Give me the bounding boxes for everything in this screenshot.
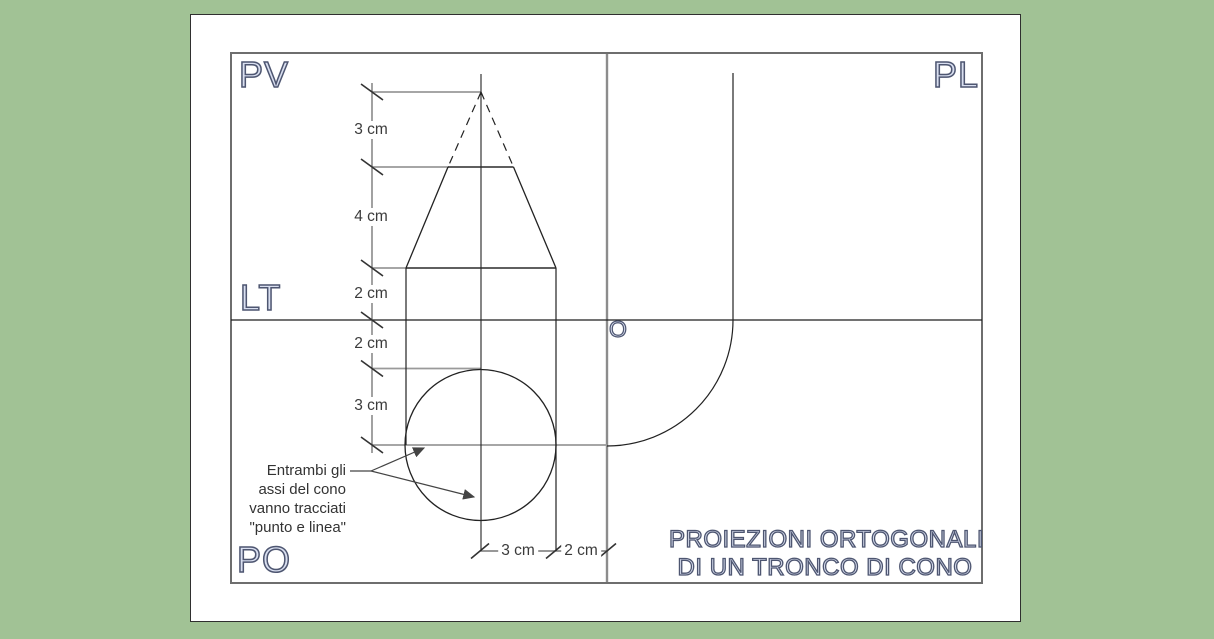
horizontal-dim-label: 2 cm [561,542,601,560]
vertical-dim-label: 3 cm [351,121,391,139]
screenshot-stage: PV PL LT PO O 3 cm 4 cm 2 cm 2 cm 3 cm 3… [0,0,1214,639]
horizontal-dim-label: 3 cm [498,542,538,560]
vertical-dim-label: 4 cm [351,208,391,226]
vertical-dim-label: 3 cm [351,397,391,415]
axes-note-line: assi del cono [226,480,346,499]
plane-label-po: PO [237,542,291,578]
axes-note-line: "punto e linea" [226,518,346,537]
vertical-dim-label: 2 cm [351,335,391,353]
vertical-dim-label: 2 cm [351,285,391,303]
axes-note: Entrambi gli assi del cono vanno traccia… [226,461,346,537]
origin-label: O [609,318,627,341]
axes-note-line: Entrambi gli [226,461,346,480]
drawing-title-line: PROIEZIONI ORTOGONALI [669,526,981,554]
plane-label-pl: PL [933,57,979,93]
axes-note-line: vanno tracciati [226,499,346,518]
drawing-title-line: DI UN TRONCO DI CONO [669,554,981,582]
drawing-title: PROIEZIONI ORTOGONALI DI UN TRONCO DI CO… [669,526,981,582]
plane-label-lt: LT [240,280,281,316]
plane-label-pv: PV [239,57,289,93]
